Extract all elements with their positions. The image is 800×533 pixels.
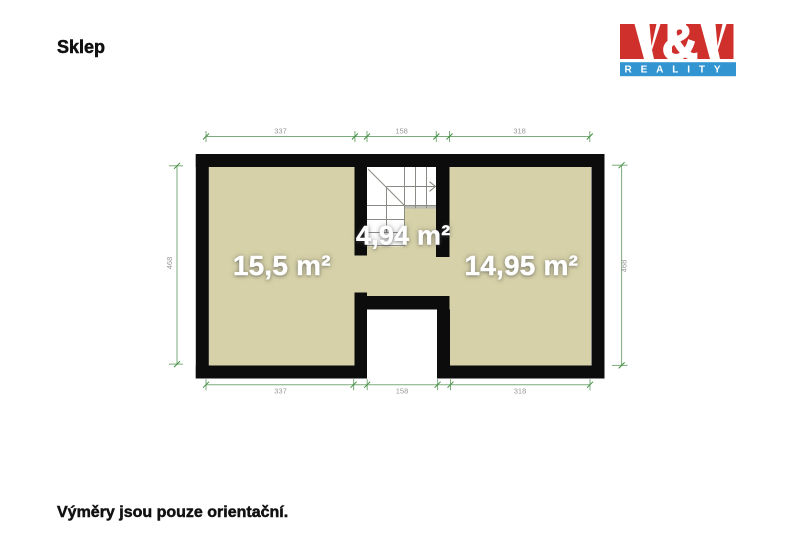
svg-text:158: 158 <box>395 127 408 136</box>
svg-text:318: 318 <box>514 387 527 396</box>
svg-text:468: 468 <box>165 257 174 270</box>
svg-text:468: 468 <box>620 260 629 273</box>
svg-text:337: 337 <box>274 127 287 136</box>
svg-text:337: 337 <box>274 387 287 396</box>
svg-text:158: 158 <box>396 387 409 396</box>
svg-text:318: 318 <box>513 127 526 136</box>
